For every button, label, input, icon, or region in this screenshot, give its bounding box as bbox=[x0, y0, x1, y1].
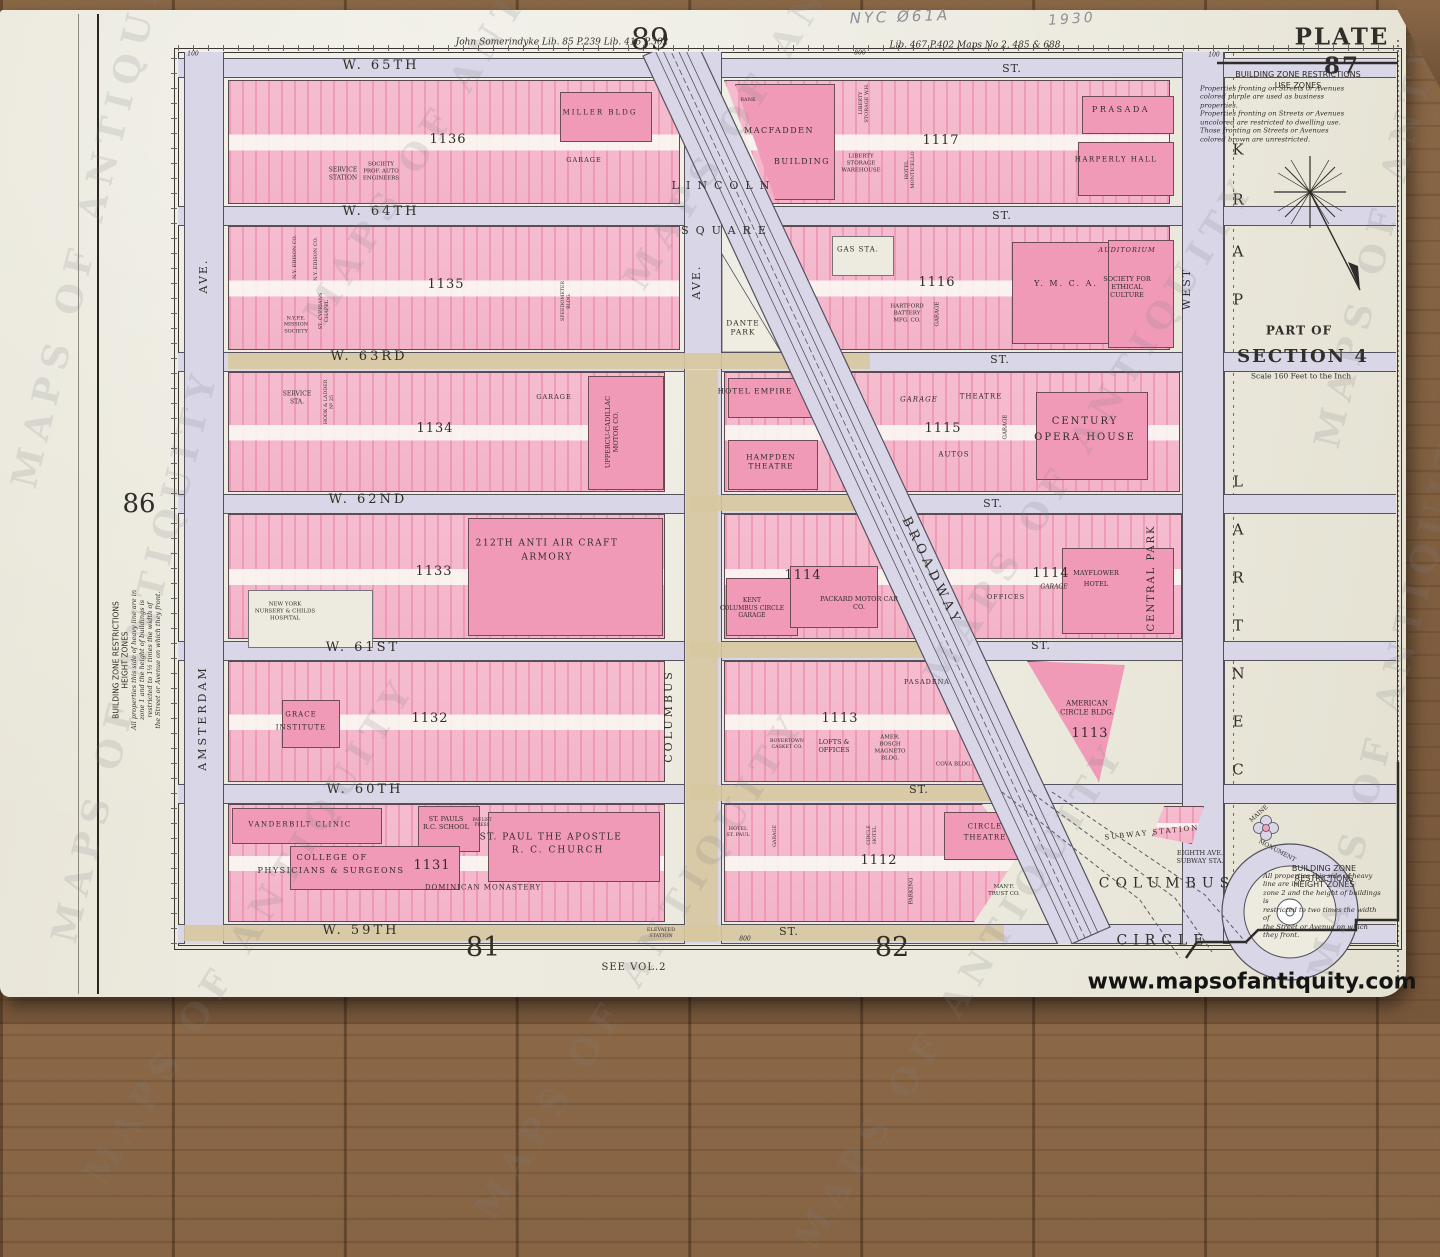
section-part-of: PART OF bbox=[1266, 324, 1332, 339]
height-zones-right-paragraph: All properties this side of heavy line a… bbox=[1263, 872, 1381, 940]
columbus-circle-2: CIRCLE bbox=[1116, 932, 1209, 950]
block-number-1114-west: 1114 bbox=[784, 568, 821, 584]
street-w63-st: ST. bbox=[990, 353, 1010, 367]
bldg-st-paul-church-1: ST. PAUL THE APOSTLE bbox=[480, 832, 623, 843]
bldg-ymca: Y. M. C. A. bbox=[1034, 279, 1098, 289]
site-url: www.mapsofantiquity.com bbox=[1087, 968, 1416, 996]
bldg-circle-theatre: CIRCLE THEATRE bbox=[964, 822, 1007, 843]
bldg-ethical-culture: SOCIETY FOR ETHICAL CULTURE bbox=[1103, 275, 1151, 299]
bldg-garage-1115b: GARAGE bbox=[1003, 415, 1010, 440]
park-letter-l: L bbox=[1233, 473, 1243, 492]
bldg-st-pauls-school: ST. PAULS R.C. SCHOOL bbox=[423, 815, 469, 831]
bldg-american-circle: AMERICAN CIRCLE BLDG. bbox=[1060, 699, 1114, 717]
cpw-west: WEST bbox=[1180, 268, 1194, 310]
street-w63: W. 63RD bbox=[330, 349, 407, 365]
block-number-1113-west: 1113 bbox=[821, 711, 858, 727]
block-number-1114-east: 1114 bbox=[1032, 566, 1069, 582]
park-letter-n: N bbox=[1231, 665, 1244, 684]
bldg-boyertown-casket: BOYERTOWN CASKET CO. bbox=[770, 739, 804, 751]
elevated-station: ELEVATED STATION bbox=[647, 927, 675, 940]
lincoln-square-1: LINCOLN bbox=[672, 179, 777, 193]
park-letter-k: K bbox=[1232, 141, 1243, 160]
bldg-garage-1116: GARAGE bbox=[935, 302, 942, 327]
bldg-century-opera: CENTURY OPERA HOUSE bbox=[1034, 414, 1136, 446]
section-number: SECTION 4 bbox=[1237, 346, 1369, 369]
bldg-ny-edison-2: N.Y. EDISON CO. bbox=[313, 237, 319, 281]
bldg-parking: PARKING bbox=[909, 878, 916, 905]
bldg-speedometer: SPEEDOMETER BLDG. bbox=[561, 281, 573, 321]
bldg-bosch-magneto: AMER. BOSCH MAGNETO BLDG. bbox=[874, 734, 905, 762]
bldg-hotel-monticello: HOTEL MONTICELLO bbox=[904, 151, 917, 188]
block-number-1117: 1117 bbox=[922, 133, 959, 149]
block-number-1132: 1132 bbox=[411, 711, 448, 727]
columbus-circle-1: COLUMBUS bbox=[1099, 875, 1236, 893]
bldg-paulist-press: PAULIST PRESS bbox=[472, 817, 491, 828]
bldg-manf-trust: MAN'F. TRUST CO. bbox=[988, 884, 1020, 898]
bldg-garage-1112: GARAGE bbox=[773, 825, 779, 847]
adjacent-plate-bottom-right: 82 bbox=[875, 931, 909, 965]
adjacent-plate-bottom-left: 81 bbox=[466, 931, 500, 965]
street-w62-st: ST. bbox=[983, 497, 1003, 511]
bldg-mayflower-hotel: MAYFLOWER HOTEL bbox=[1073, 568, 1119, 590]
bldg-offices-1114: OFFICES bbox=[987, 593, 1025, 601]
street-w60-st: ST. bbox=[909, 783, 929, 797]
bldg-hotel-empire: HOTEL EMPIRE bbox=[718, 386, 793, 395]
bldg-service-sta-1134: SERVICE STA. bbox=[283, 391, 311, 406]
park-letter-t: T bbox=[1233, 617, 1243, 636]
bldg-college-1: COLLEGE OF bbox=[296, 853, 367, 863]
see-vol-note: SEE VOL.2 bbox=[601, 962, 666, 975]
bldg-hotel-st-paul: HOTEL ST. PAUL bbox=[726, 826, 749, 839]
height-zones-left-heading: BUILDING ZONE RESTRICTIONS HEIGHT ZONES bbox=[112, 601, 131, 719]
bldg-liberty-storage-warehouse: LIBERTY STORAGE WAREHOUSE bbox=[841, 154, 880, 175]
handwritten-year: 1930 bbox=[1048, 10, 1097, 31]
bldg-garage-1114: GARAGE bbox=[1040, 583, 1067, 591]
dante-park: DANTE PARK bbox=[726, 319, 759, 338]
street-w60: W. 60TH bbox=[327, 782, 404, 798]
bldg-st-cyprians: ST. CYPRIANS CHAPEL bbox=[318, 293, 331, 330]
bldg-garage-1115: GARAGE bbox=[900, 396, 938, 405]
bldg-packard: PACKARD MOTOR CAR CO. bbox=[820, 595, 898, 611]
photo-of-antique-map: { "watermark": {"text": "MAPS OF ANTIQUI… bbox=[0, 0, 1440, 1024]
section-scale: Scale 160 Feet to the Inch bbox=[1251, 371, 1351, 380]
bldg-ny-nursery: NEW YORK NURSERY & CHILDS HOSPITAL bbox=[255, 602, 315, 623]
handwritten-code: NYC Ø61A bbox=[849, 6, 950, 28]
bldg-grace-institute: GRACE INSTITUTE bbox=[276, 708, 326, 733]
adjacent-plate-top: 89 bbox=[631, 21, 669, 59]
bldg-theatre-1115: THEATRE bbox=[960, 393, 1003, 402]
bldg-prasada: PRASADA bbox=[1092, 105, 1150, 115]
park-letter-r2: R bbox=[1232, 191, 1243, 210]
subway-station: SUBWAY STATION bbox=[1104, 824, 1200, 843]
bldg-nype-mission: N.Y.P.E. MISSION SOCIETY bbox=[284, 316, 308, 335]
park-letter-c: C bbox=[1232, 761, 1243, 780]
street-w59-st: ST. bbox=[779, 925, 799, 939]
bldg-circle-hotel: CIRCLE HOTEL bbox=[867, 825, 879, 845]
bldg-uppercu-cadillac: UPPERCU-CADILLAC MOTOR CO. bbox=[604, 396, 620, 468]
bldg-society-auto-engineers: SOCIETY PROF. AUTO ENGINEERS bbox=[363, 162, 399, 183]
bldg-macfadden-2: BUILDING bbox=[774, 157, 830, 167]
block-number-1135: 1135 bbox=[427, 277, 464, 293]
park-letter-a: A bbox=[1233, 521, 1244, 540]
amsterdam-ave-abbrev: AVE. bbox=[197, 259, 211, 294]
block-number-1134: 1134 bbox=[416, 421, 453, 437]
bldg-garage-1134: GARAGE bbox=[536, 393, 571, 401]
broadway-name: BROADWAY bbox=[897, 515, 964, 630]
block-number-1131: 1131 bbox=[413, 858, 450, 874]
street-w62: W. 62ND bbox=[329, 492, 408, 508]
tick-800-bottom: 800 bbox=[739, 935, 750, 943]
street-w61-st: ST. bbox=[1031, 639, 1051, 653]
bldg-cova: COVA BLDG. bbox=[936, 762, 972, 769]
bldg-gas-station: GAS STA. bbox=[837, 246, 879, 255]
columbus-ave-name: COLUMBUS bbox=[662, 669, 676, 763]
bldg-college-2: PHYSICIANS & SURGEONS bbox=[257, 866, 404, 876]
use-zones-heading-1: BUILDING ZONE RESTRICTIONS bbox=[1235, 70, 1360, 80]
use-zones-paragraph: Properties fronting on Streets or Avenue… bbox=[1200, 84, 1360, 143]
bldg-pasadena: PASADENA bbox=[904, 678, 950, 686]
bldg-liberty-storage-wh: LIBERTY STORAGE W.H. bbox=[858, 83, 871, 122]
bldg-harperly-hall: HARPERLY HALL bbox=[1075, 156, 1158, 165]
street-w61: W. 61ST bbox=[326, 640, 400, 656]
street-w64: W. 64TH bbox=[343, 204, 420, 220]
bldg-miller: MILLER BLDG bbox=[563, 109, 638, 118]
park-letter-e: E bbox=[1233, 713, 1244, 732]
bldg-service-station-1136: SERVICE STATION bbox=[329, 167, 357, 182]
street-w65: W. 65TH bbox=[343, 58, 420, 74]
block-number-1116: 1116 bbox=[918, 275, 955, 291]
park-letter-a2: A bbox=[1233, 243, 1244, 262]
bldg-macfadden-1: MACFADDEN bbox=[744, 126, 814, 136]
maine-monument-1: MAINE bbox=[1248, 804, 1270, 825]
tick-100-left: 100 bbox=[187, 50, 198, 58]
tick-800-top: 800 bbox=[854, 49, 865, 57]
bldg-ny-edison-1: N.Y. EDISON CO. bbox=[292, 235, 298, 279]
bldg-garage-1136: GARAGE bbox=[566, 156, 601, 164]
park-letter-p: P bbox=[1233, 291, 1243, 310]
block-number-1112: 1112 bbox=[860, 853, 897, 869]
bldg-st-paul-church-2: R. C. CHURCH bbox=[512, 845, 605, 856]
block-number-1133: 1133 bbox=[415, 564, 452, 580]
block-number-1136: 1136 bbox=[429, 132, 466, 148]
tick-100-right: 100 bbox=[1208, 51, 1219, 59]
street-w64-st: ST. bbox=[992, 209, 1012, 223]
bldg-auditorium: AUDITORIUM bbox=[1098, 246, 1155, 254]
street-w59: W. 59TH bbox=[323, 923, 400, 939]
block-number-1113-east: 1113 bbox=[1071, 726, 1108, 742]
street-w65-st: ST. bbox=[1002, 62, 1022, 76]
top-note-right: Lib. 467 P.402 Maps No 2, 485 & 688 bbox=[889, 40, 1060, 51]
bldg-hartford-battery: HARTFORD BATTERY MFG. CO. bbox=[890, 304, 923, 325]
block-number-1115: 1115 bbox=[924, 421, 961, 437]
map-labels-layer: John Somerindyke Lib. 85 P.239 Lib. 416 … bbox=[0, 0, 1440, 1024]
bldg-autos: AUTOS bbox=[938, 451, 969, 460]
cpw-name: CENTRAL PARK bbox=[1146, 525, 1159, 632]
bldg-hampden-theatre: HAMPDEN THEATRE bbox=[746, 453, 796, 472]
columbus-ave-abbrev: AVE. bbox=[690, 265, 704, 300]
bldg-dominican-monastery: DOMINICAN MONASTERY bbox=[425, 884, 541, 893]
amsterdam-ave-name: AMSTERDAM bbox=[196, 665, 210, 770]
bldg-vanderbilt-clinic: VANDERBILT CLINIC bbox=[248, 821, 351, 830]
maine-monument-2: MONUMENT bbox=[1257, 838, 1297, 864]
park-letter-r: R bbox=[1232, 569, 1243, 588]
bldg-armory: 212TH ANTI AIR CRAFT ARMORY bbox=[476, 538, 619, 565]
eighth-ave-subway: EIGHTH AVE. SUBWAY STA. bbox=[1176, 849, 1223, 865]
bldg-lofts-offices: LOFTS & OFFICES bbox=[818, 738, 849, 754]
bldg-hook-ladder: HOOK & LADDER Nº 25 bbox=[324, 380, 336, 424]
height-zones-left-paragraph: All properties this side of heavy line a… bbox=[130, 590, 163, 730]
bldg-bank: BANK bbox=[740, 97, 755, 103]
adjacent-plate-left: 86 bbox=[122, 488, 155, 521]
bldg-kent-garage: KENT COLUMBUS CIRCLE GARAGE bbox=[720, 597, 784, 620]
lincoln-square-2: SQUARE bbox=[681, 224, 773, 238]
